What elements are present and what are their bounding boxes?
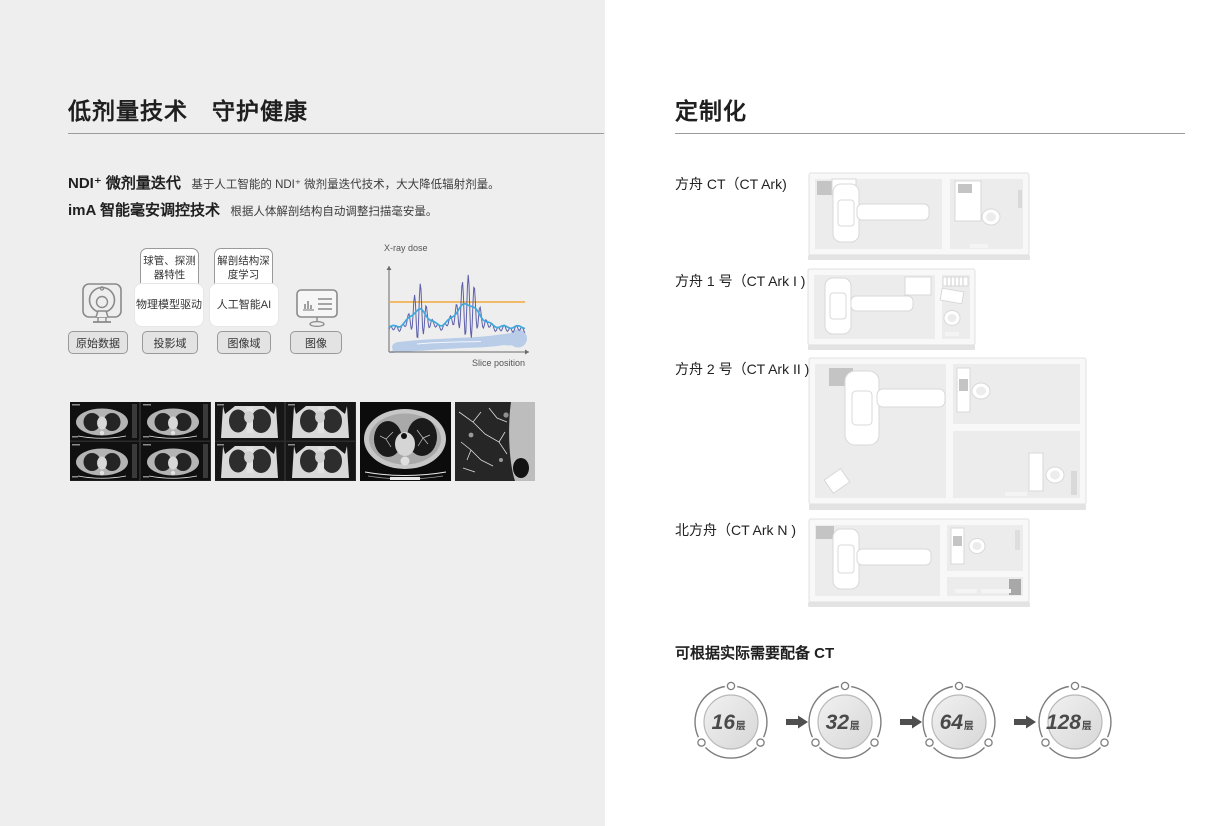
badge-number: 32 bbox=[826, 711, 850, 734]
feature-name: imA 智能毫安调控技术 bbox=[68, 202, 220, 219]
floorplan-ct-ark-2 bbox=[805, 355, 1090, 512]
left-panel: 低剂量技术 守护健康 NDI⁺ 微剂量迭代 基于人工智能的 NDI⁺ 微剂量迭代… bbox=[0, 0, 605, 826]
badge-unit: 层 bbox=[736, 721, 746, 732]
ct-coronal-grid-image bbox=[215, 402, 356, 481]
badge-unit: 层 bbox=[964, 721, 974, 732]
left-section-title: 低剂量技术 守护健康 bbox=[68, 92, 308, 126]
flow-box-text: 球管、探测器特性 bbox=[141, 255, 198, 282]
chart-ylabel: X-ray dose bbox=[384, 243, 428, 253]
stage-label: 投影域 bbox=[154, 335, 187, 351]
badge-unit: 层 bbox=[850, 721, 860, 732]
stage-label: 原始数据 bbox=[76, 335, 120, 351]
flow-box-text: 物理模型驱动 bbox=[136, 298, 202, 312]
ct-axial-grid-image bbox=[70, 402, 211, 481]
stage-label: 图像 bbox=[305, 335, 327, 351]
feature-line-ndi: NDI⁺ 微剂量迭代 基于人工智能的 NDI⁺ 微剂量迭代技术，大大降低辐射剂量… bbox=[68, 172, 500, 193]
model-label-ct-ark-n: 北方舟（CT Ark N ) bbox=[675, 520, 796, 540]
body-silhouette bbox=[389, 330, 527, 354]
model-label-ct-ark: 方舟 CT（CT Ark) bbox=[675, 174, 787, 194]
ct-lung-detail-image bbox=[455, 402, 535, 481]
ct-option-badge-64: 64 层 bbox=[916, 679, 1002, 765]
right-section-title: 定制化 bbox=[675, 92, 747, 126]
stage-label: 图像域 bbox=[228, 335, 261, 351]
dose-modulation-chart bbox=[383, 256, 535, 358]
right-panel: 定制化 方舟 CT（CT Ark) 方舟 1 号（CT Ark I ) bbox=[605, 0, 1209, 826]
feature-desc: 根据人体解剖结构自动调整扫描毫安量。 bbox=[230, 206, 437, 218]
feature-desc: 基于人工智能的 NDI⁺ 微剂量迭代技术，大大降低辐射剂量。 bbox=[191, 179, 499, 191]
badge-number: 16 bbox=[712, 711, 736, 734]
modulated-dose-line bbox=[389, 275, 525, 338]
stage-pill-projection: 投影域 bbox=[142, 331, 198, 354]
ct-option-badge-16: 16 层 bbox=[688, 679, 774, 765]
model-label-ct-ark-1: 方舟 1 号（CT Ark I ) bbox=[675, 271, 805, 291]
flow-box-physical-model: 物理模型驱动 bbox=[134, 283, 204, 327]
flow-box-text: 人工智能AI bbox=[217, 298, 271, 312]
left-title-rule bbox=[68, 133, 604, 134]
feature-name: NDI⁺ 微剂量迭代 bbox=[68, 175, 181, 192]
stage-pill-rawdata: 原始数据 bbox=[68, 331, 128, 354]
stage-pill-image: 图像 bbox=[290, 331, 342, 354]
floorplan-ct-ark bbox=[805, 170, 1033, 262]
brochure-page: 低剂量技术 守护健康 NDI⁺ 微剂量迭代 基于人工智能的 NDI⁺ 微剂量迭代… bbox=[0, 0, 1209, 826]
stage-pill-imagedomain: 图像域 bbox=[217, 331, 271, 354]
chart-xlabel: Slice position bbox=[472, 358, 525, 368]
ct-scanner-icon bbox=[76, 282, 128, 330]
floorplan-ct-ark-1 bbox=[805, 266, 978, 352]
flow-box-ai: 人工智能AI bbox=[209, 283, 279, 327]
monitor-icon bbox=[295, 288, 339, 328]
right-title-rule bbox=[675, 133, 1185, 134]
badge-number: 128 bbox=[1046, 711, 1081, 734]
ct-options-row: 16 层 32 层 bbox=[688, 679, 1128, 765]
flow-box-text: 解剖结构深度学习 bbox=[215, 255, 272, 282]
config-title: 可根据实际需要配备 CT bbox=[675, 642, 834, 663]
floorplan-ct-ark-n bbox=[805, 516, 1033, 609]
model-label-ct-ark-2: 方舟 2 号（CT Ark II ) bbox=[675, 359, 809, 379]
ct-option-badge-128: 128 层 bbox=[1032, 679, 1118, 765]
feature-line-ima: imA 智能毫安调控技术 根据人体解剖结构自动调整扫描毫安量。 bbox=[68, 199, 437, 220]
badge-unit: 层 bbox=[1082, 721, 1092, 732]
badge-number: 64 bbox=[940, 711, 964, 734]
ct-axial-slice-image bbox=[360, 402, 451, 481]
ct-option-badge-32: 32 层 bbox=[802, 679, 888, 765]
